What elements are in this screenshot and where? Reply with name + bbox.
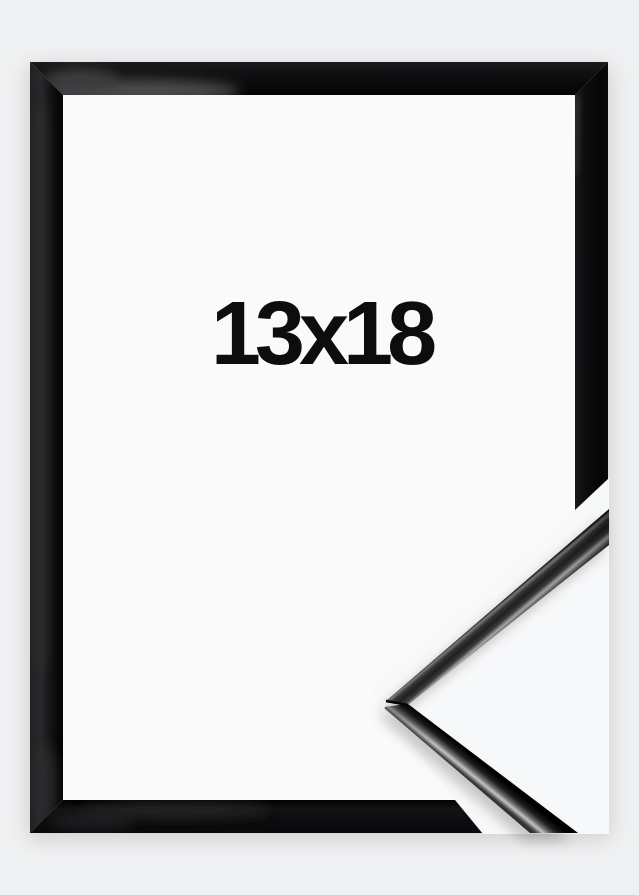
size-label: 13x18 xyxy=(211,289,431,379)
product-photo: 13x18 xyxy=(0,0,639,895)
frame-illustration xyxy=(0,0,639,895)
frame-left-bar xyxy=(30,62,63,833)
